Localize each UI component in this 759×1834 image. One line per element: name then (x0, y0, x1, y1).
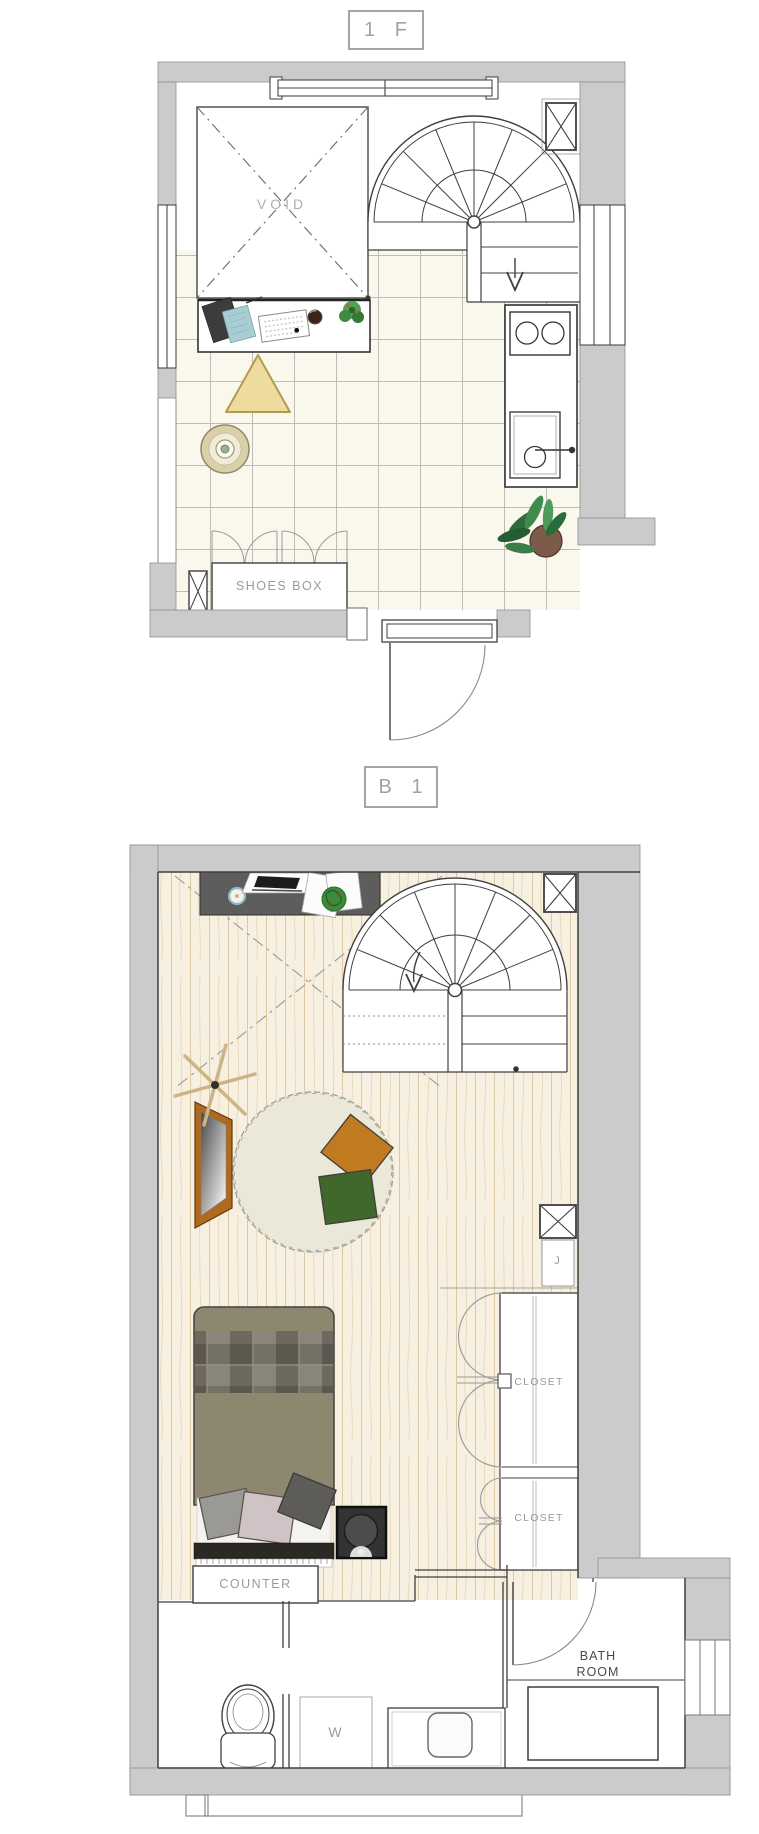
round-stool (201, 425, 249, 473)
closet-lower-label: CLOSET (502, 1512, 576, 1524)
bed (194, 1307, 336, 1567)
kitchen-counter (505, 305, 577, 487)
shoes-box-label: SHOES BOX (214, 579, 345, 593)
electric-fan (337, 1507, 386, 1558)
counter-label: COUNTER (195, 1577, 316, 1591)
stove (510, 312, 570, 355)
void-label: VOID (230, 196, 334, 212)
washer-label: W (300, 1724, 372, 1740)
wall-lines-1f (158, 398, 176, 563)
bathtub (528, 1687, 658, 1760)
cushion-green (319, 1170, 377, 1225)
right-window (580, 205, 625, 345)
shaft-box-1f (542, 99, 580, 154)
bathroom-label-line2: ROOM (552, 1665, 644, 1681)
round-rug (233, 1092, 393, 1252)
standing-mirror (195, 1102, 232, 1228)
basement-tag: B 1 (364, 766, 438, 808)
shaft-box-entry (189, 571, 207, 612)
vanity-sink (388, 1708, 505, 1770)
desk-b1 (200, 870, 380, 917)
desk-plant-b1 (322, 887, 346, 911)
exterior-step (186, 1795, 522, 1816)
entrance-door (347, 608, 497, 740)
floorplan-drawing (0, 0, 759, 1834)
floor1-tag: 1 F (348, 10, 424, 50)
plaid-blanket (195, 1331, 333, 1393)
desk-1f (198, 297, 370, 352)
closet-upper-label: CLOSET (502, 1376, 576, 1388)
bathroom-window (685, 1640, 730, 1715)
headboard (194, 1543, 334, 1559)
toilet (221, 1685, 275, 1769)
shaft-box-b1-mid (540, 1205, 576, 1238)
floorplan-page: 1 F VOID SHOES BOX B 1 J CLOSET CLOSET C… (0, 0, 759, 1834)
door-swing-arc (390, 645, 485, 740)
floor1-plan (150, 62, 655, 740)
bathroom-label-line1: BATH (552, 1649, 644, 1665)
shaft-box-b1-top (544, 874, 576, 912)
coffee-cup (308, 310, 322, 324)
bathroom-label: BATH ROOM (552, 1649, 644, 1680)
laptop (242, 873, 316, 893)
j-box-label: J (542, 1255, 574, 1267)
